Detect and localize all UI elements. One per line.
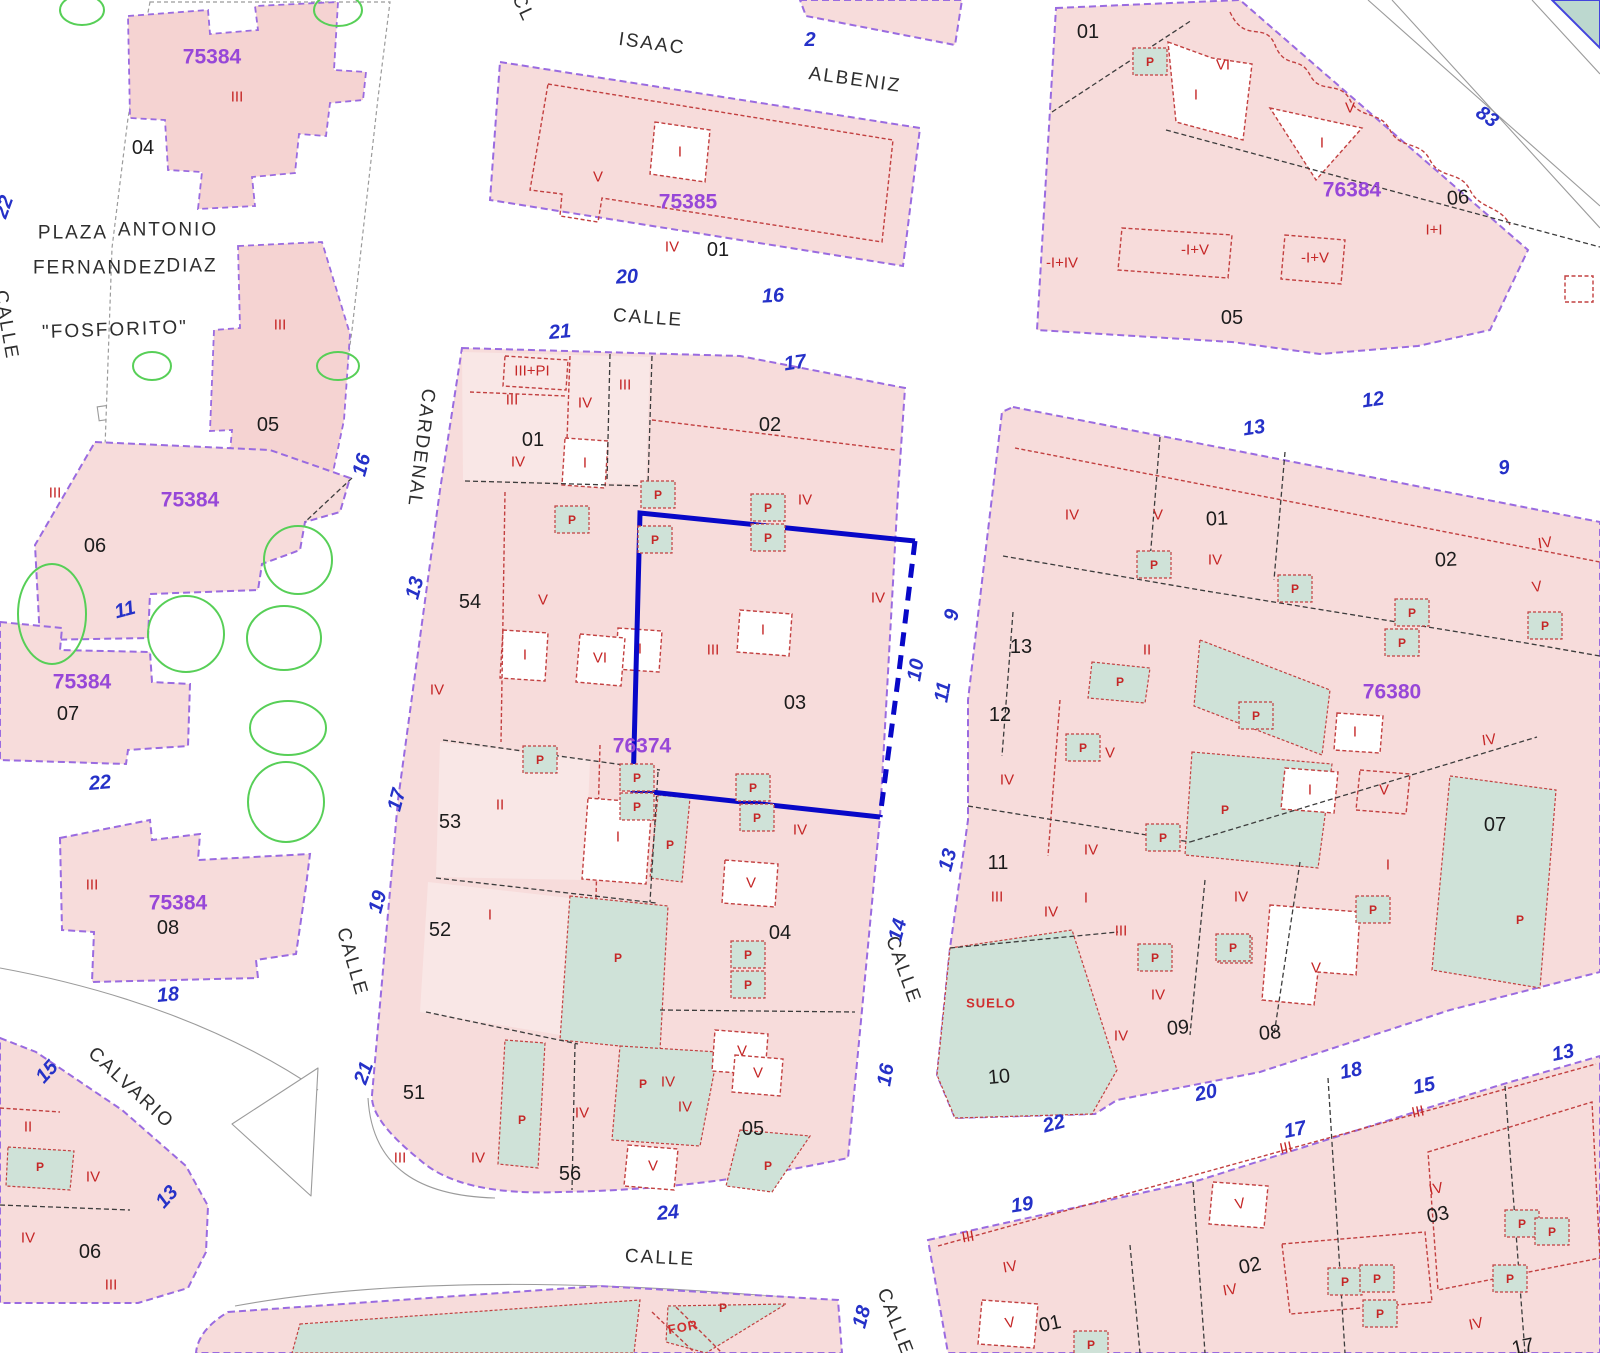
street-number-label: 24 [655, 1201, 680, 1225]
parcel-number-label: 13 [1010, 636, 1032, 658]
patio-label: P [1373, 1272, 1381, 1286]
floor-count-label: IV [1222, 1280, 1239, 1299]
patio-label: P [1506, 1272, 1514, 1286]
street-name-label: FERNANDEZ [33, 258, 167, 279]
parcel-number-label: 01 [1077, 21, 1099, 43]
street-name-label: CARDENAL [403, 387, 438, 508]
floor-count-label: I [638, 641, 642, 658]
block-id-label: 76380 [1363, 681, 1421, 704]
patio-label: P [1518, 1217, 1526, 1231]
block-id-label: 75384 [161, 489, 220, 512]
floor-count-label: I [1386, 857, 1390, 874]
patio-label: P [1252, 709, 1260, 723]
street-number-label: 13 [1550, 1040, 1576, 1066]
floor-count-label: III+PI [514, 363, 549, 380]
floor-count-label: IV [471, 1150, 485, 1167]
floor-count-label: IV [1481, 731, 1497, 750]
block-id-label: 75384 [149, 892, 208, 915]
floor-count-label: III [506, 392, 519, 409]
street-name-label: CALLE [881, 933, 925, 1006]
street-number-label: 15 [1411, 1073, 1438, 1099]
floor-count-label: III [86, 877, 99, 894]
block-id-label: 75384 [53, 671, 112, 694]
patio-label: P [1229, 941, 1237, 955]
floor-count-label: III [49, 485, 62, 502]
floor-count-label: V [648, 1158, 658, 1175]
street-number-label: 18 [1338, 1058, 1365, 1084]
parcel-number-label: 05 [257, 414, 279, 436]
parcel-number-label: 09 [1166, 1016, 1190, 1040]
patio-label: P [36, 1160, 44, 1174]
floor-count-label: IV [661, 1074, 675, 1091]
floor-count-label: V [593, 169, 603, 186]
street-number-label: 17 [782, 350, 808, 375]
parcel-number-label: 11 [988, 852, 1009, 874]
patio-label: P [1541, 619, 1549, 633]
patio-label: P [1548, 1225, 1556, 1239]
street-number-label: 18 [156, 983, 181, 1007]
floor-count-label: I [678, 144, 682, 161]
street-number-label: 9 [1497, 456, 1512, 479]
patio-label: P [1116, 675, 1124, 689]
street-number-label: 2 [803, 29, 815, 51]
parcel-number-label: 05 [742, 1118, 764, 1140]
floor-count-label: IV [1084, 842, 1098, 859]
street-number-label: 13 [934, 846, 961, 873]
floor-count-label: IV [1044, 904, 1058, 921]
street-name-label: CALLE [0, 289, 22, 362]
cadastral-map-viewport[interactable]: CLISAACALBENIZCALLECARDENALPLAZAANTONIOF… [0, 0, 1600, 1353]
patio-label: P [1369, 903, 1377, 917]
block-north-2[interactable] [800, 0, 962, 45]
street-number-label: 9 [940, 607, 964, 623]
patio-label: P [719, 1301, 727, 1315]
parcel-number-label: 03 [1425, 1202, 1451, 1228]
floor-count-label: IV [1208, 552, 1222, 569]
floor-count-label: I [523, 647, 527, 664]
street-number-label: 19 [364, 888, 391, 916]
parcel-number-label: 06 [84, 535, 106, 557]
patio-label: P [1151, 951, 1159, 965]
street-name-label: CALLE [873, 1285, 918, 1353]
floor-count-label: I [1194, 87, 1198, 104]
parcel-number-label: 01 [1037, 1311, 1063, 1337]
floor-count-label: V [538, 592, 548, 609]
parcel-number-label: 04 [769, 922, 791, 944]
street-number-label: 16 [761, 284, 785, 307]
floor-count-label: III [274, 317, 287, 334]
parcel-number-label: 01 [1205, 507, 1228, 530]
street-name-label: ANTONIO [118, 220, 218, 241]
street-name-label: CALLE [624, 1246, 695, 1271]
patio-label: P [1079, 741, 1087, 755]
street-number-label: 13 [1241, 416, 1266, 441]
patio-label: P [764, 501, 772, 515]
street-number-label: 83 [1472, 102, 1503, 133]
block-id-label: 75384 [183, 46, 242, 69]
floor-count-label: IV [1151, 987, 1165, 1004]
floor-count-label: III [105, 1277, 118, 1294]
street-number-label: 19 [1009, 1192, 1035, 1217]
floor-count-label: IV [578, 395, 592, 412]
floor-count-label: VI [1216, 57, 1230, 74]
floor-count-label: V [746, 875, 756, 892]
parcel-number-label: 06 [1446, 186, 1470, 210]
parcel-number-label: 52 [429, 919, 451, 941]
patio-label: P [654, 488, 662, 502]
parcel-number-label: 07 [57, 703, 79, 725]
patio-area [1432, 776, 1556, 988]
floor-count-label: V [1105, 745, 1115, 762]
floor-count-label: IV [793, 822, 807, 839]
patio-label: P [1376, 1307, 1384, 1321]
street-number-label: 16 [873, 1061, 899, 1088]
patio-label: P [1291, 582, 1299, 596]
patio-label: P [614, 951, 622, 965]
patio-label: P [1516, 913, 1524, 927]
tree-icon [247, 606, 321, 670]
special-label: SUELO [966, 996, 1016, 1011]
floor-count-label: I [583, 455, 587, 472]
patio-area [612, 1046, 718, 1146]
floor-count-label: V [1379, 782, 1389, 799]
floor-count-label: V [1311, 960, 1321, 977]
street-number-label: 16 [348, 451, 375, 479]
floor-count-label: IV [575, 1105, 589, 1122]
block-id-label: 76384 [1323, 179, 1382, 202]
street-number-label: 20 [614, 265, 638, 288]
tree-icon [248, 762, 324, 842]
patio-label: P [633, 771, 641, 785]
floor-count-label: IV [871, 590, 885, 607]
patio-label: P [666, 838, 674, 852]
street-name-label: CL [508, 0, 539, 25]
courtyard [1565, 276, 1593, 302]
floor-count-label: III [394, 1150, 407, 1167]
patio-label: P [651, 533, 659, 547]
patio-label: P [753, 811, 761, 825]
patio-label: P [1398, 636, 1406, 650]
street-name-label: ALBENIZ [807, 63, 902, 97]
floor-count-label: IV [1000, 772, 1014, 789]
traffic-island [232, 1068, 318, 1196]
floor-count-label: IV [1234, 889, 1248, 906]
patio-label: P [1408, 606, 1416, 620]
floor-count-label: III [707, 642, 720, 659]
floor-count-label: V [753, 1065, 763, 1082]
floor-count-label: II [24, 1119, 32, 1136]
floor-count-label: III [1115, 923, 1128, 940]
floor-count-label: III [231, 89, 244, 106]
parcel-number-label: 12 [989, 704, 1011, 726]
floor-count-label: V [1345, 100, 1355, 117]
street-number-label: 11 [930, 680, 955, 704]
parcel-number-label: 08 [1258, 1021, 1282, 1045]
street-number-label: 12 [1360, 388, 1385, 413]
floor-count-label: -I+V [1301, 250, 1329, 267]
floor-count-label: IV [21, 1230, 35, 1247]
patio-label: P [764, 531, 772, 545]
tree-icon [60, 0, 104, 25]
floor-count-label: I [761, 622, 765, 639]
parcel-number-label: 54 [459, 591, 481, 613]
patio-label: P [1087, 1338, 1095, 1352]
parcel-number-label: 02 [1237, 1253, 1263, 1279]
parcel-number-label: 51 [403, 1082, 425, 1104]
floor-count-label: I [488, 907, 492, 924]
parcel-number-label: 07 [1484, 814, 1506, 836]
street-number-label: 18 [848, 1303, 875, 1331]
street-number-label: 20 [1192, 1080, 1219, 1106]
floor-count-label: -I+V [1181, 242, 1209, 259]
floor-count-label: I [1308, 782, 1312, 799]
street-number-label: 14 [884, 916, 911, 943]
parcel-number-label: 56 [559, 1163, 581, 1185]
floor-count-label: I [616, 829, 620, 846]
floor-count-label: I+I [1425, 222, 1442, 239]
floor-count-label: III [991, 889, 1004, 906]
floor-count-label: V [737, 1043, 747, 1060]
tree-icon [250, 701, 326, 755]
floor-count-label: V [1153, 507, 1163, 524]
parcel-number-label: 01 [707, 239, 729, 261]
street-number-label: 10 [903, 657, 929, 683]
block-id-label: 76374 [613, 735, 672, 758]
floor-count-label: III [619, 377, 632, 394]
floor-count-label: IV [86, 1169, 100, 1186]
patio-label: P [1150, 558, 1158, 572]
floor-count-label: I [1353, 724, 1357, 741]
floor-count-label: II [496, 797, 504, 814]
floor-count-label: IV [798, 492, 812, 509]
floor-count-label: IV [1114, 1028, 1128, 1045]
street-name-label: CALLE [332, 925, 372, 998]
floor-count-label: III [1410, 1102, 1426, 1121]
patio-area [560, 896, 668, 1050]
floor-count-label: I [1320, 135, 1324, 152]
floor-count-label: II [1143, 642, 1151, 659]
parcel-number-label: 10 [987, 1065, 1011, 1089]
patio-label: P [639, 1077, 647, 1091]
floor-count-label: IV [511, 454, 525, 471]
patio-label: P [568, 513, 576, 527]
parcel-number-label: 53 [439, 811, 461, 833]
parcel-number-label: 06 [79, 1241, 101, 1263]
parcel-number-label: 05 [1221, 307, 1243, 329]
street-name-label: CALLE [612, 305, 683, 331]
street-number-label: 22 [0, 193, 18, 222]
patio-label: P [744, 978, 752, 992]
floor-count-label: VI [593, 650, 607, 667]
street-name-label: ISAAC [617, 29, 686, 59]
patio-label: P [633, 800, 641, 814]
corner-parcel[interactable] [1552, 0, 1600, 48]
patio-label: P [1159, 831, 1167, 845]
patio-label: P [1221, 803, 1229, 817]
floor-count-label: IV [430, 682, 444, 699]
floor-count-label: -I+IV [1046, 255, 1078, 272]
parcel-number-label: 02 [1434, 548, 1457, 571]
floor-count-label: IV [1002, 1257, 1019, 1276]
block-76384[interactable] [1037, 0, 1528, 354]
patio-label: P [518, 1113, 526, 1127]
floor-count-label: IV [665, 239, 679, 256]
patio-area [498, 1040, 545, 1168]
patio-label: P [744, 948, 752, 962]
street-number-label: 22 [87, 771, 112, 795]
block-id-label: 75385 [659, 191, 718, 214]
street-name-label: PLAZA [38, 223, 108, 244]
courtyard [1334, 713, 1383, 753]
parcel-number-label: 03 [784, 692, 806, 714]
floor-count-label: IV [1065, 507, 1079, 524]
patio-label: P [536, 753, 544, 767]
cadastral-map[interactable]: CLISAACALBENIZCALLECARDENALPLAZAANTONIOF… [0, 0, 1600, 1353]
street-number-label: 21 [547, 320, 572, 344]
parcel-number-label: 01 [522, 429, 544, 451]
patio-label: P [764, 1159, 772, 1173]
parcel-number-label: 02 [759, 414, 781, 436]
parcel-01-area[interactable] [462, 352, 650, 484]
street-name-label: DIAZ [166, 256, 217, 277]
patio-label: P [1146, 55, 1154, 69]
floor-count-label: I [1084, 890, 1088, 907]
floor-count-label: IV [678, 1099, 692, 1116]
floor-count-label: IV [1537, 534, 1553, 553]
patio-label: P [1341, 1275, 1349, 1289]
tree-icon [148, 596, 224, 672]
parcel-number-label: 04 [132, 137, 154, 159]
parcel-number-label: 08 [157, 917, 179, 939]
patio-label: P [749, 781, 757, 795]
